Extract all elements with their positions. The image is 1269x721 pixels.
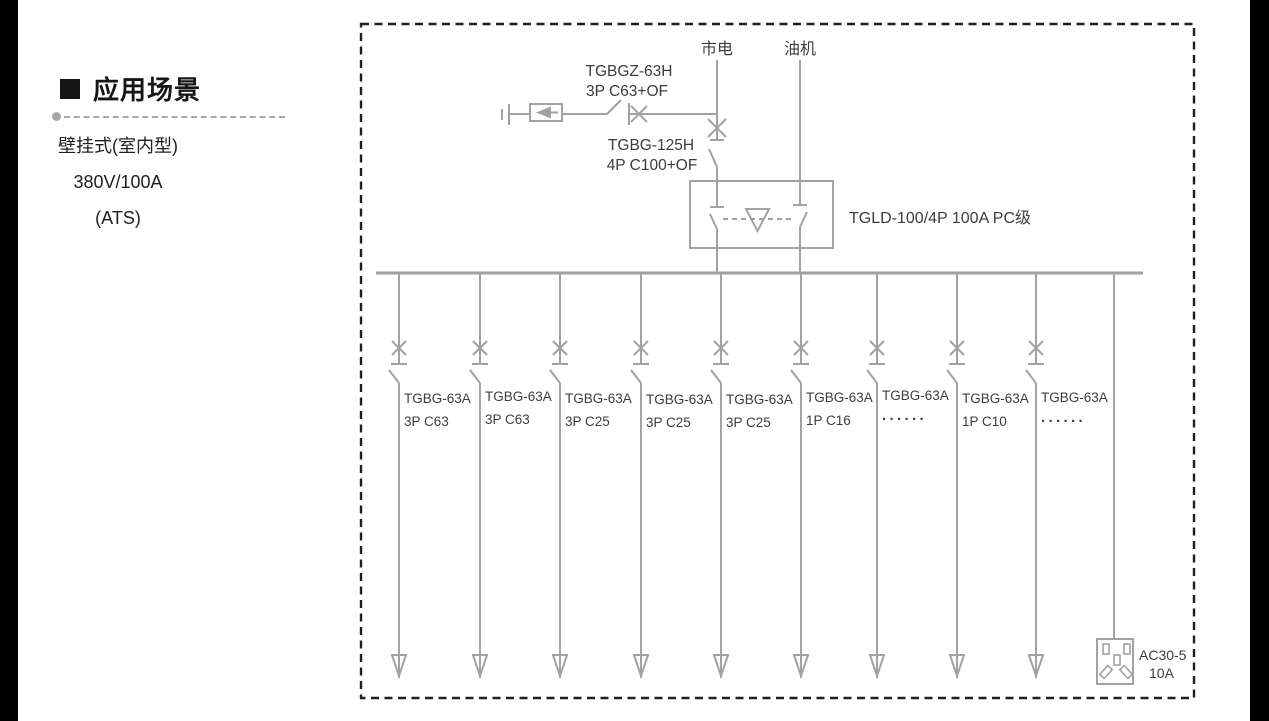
- feeder-branch-5: TGBG-63A 3P C25: [711, 273, 793, 678]
- branch-model: TGBG-63A: [646, 392, 713, 407]
- generator-source-label: 油机: [784, 40, 816, 58]
- diagram-border: [361, 24, 1194, 698]
- branch-breaker-icon: [631, 273, 649, 678]
- branch-model: TGBG-63A: [565, 391, 632, 406]
- branch-model: TGBG-63A: [882, 388, 949, 403]
- ats-switch-icon: [690, 181, 833, 273]
- branch-model: TGBG-63A: [962, 391, 1029, 406]
- branch-spec: 3P C25: [565, 414, 610, 429]
- surge-protector-icon: [502, 100, 717, 125]
- mains-breaker-icon: [708, 60, 726, 207]
- branch-spec: 3P C63: [404, 414, 449, 429]
- branch-breaker-icon: [711, 273, 729, 678]
- spd-breaker-spec: 3P C63+OF: [586, 83, 668, 100]
- main-breaker-model: TGBG-125H: [608, 137, 694, 154]
- branch-breaker-icon: [947, 273, 965, 678]
- feeder-branch-7: TGBG-63A ······: [867, 273, 949, 678]
- branch-breaker-icon: [1026, 273, 1044, 678]
- page: 应用场景 壁挂式(室内型) 380V/100A (ATS) 市电 油机: [0, 0, 1269, 721]
- branch-spec: 3P C25: [726, 415, 771, 430]
- feeder-branch-2: TGBG-63A 3P C63: [470, 273, 552, 678]
- branch-model: TGBG-63A: [485, 389, 552, 404]
- branch-breaker-icon: [389, 273, 407, 678]
- branch-model: TGBG-63A: [726, 392, 793, 407]
- wiring-diagram: 市电 油机 TGBGZ-63H 3P C: [0, 0, 1269, 721]
- socket-model-label: AC30-5: [1139, 647, 1187, 663]
- feeder-branch-6: TGBG-63A 1P C16: [791, 273, 873, 678]
- branch-spec: 1P C10: [962, 414, 1007, 429]
- spd-breaker-model: TGBGZ-63H: [586, 63, 673, 80]
- branch-model: TGBG-63A: [1041, 390, 1108, 405]
- feeder-branch-9: TGBG-63A ······: [1026, 273, 1108, 678]
- feeder-branch-8: TGBG-63A 1P C10: [947, 273, 1029, 678]
- branch-breaker-icon: [867, 273, 885, 678]
- branch-spec: 1P C16: [806, 413, 851, 428]
- branch-spec: ······: [882, 411, 927, 428]
- socket-rating-label: 10A: [1149, 665, 1175, 681]
- ats-model-label: TGLD-100/4P 100A PC级: [849, 209, 1031, 227]
- feeder-branch-1: TGBG-63A 3P C63: [389, 273, 471, 678]
- feeder-branch-4: TGBG-63A 3P C25: [631, 273, 713, 678]
- branch-model: TGBG-63A: [806, 390, 873, 405]
- feeder-branch-3: TGBG-63A 3P C25: [550, 273, 632, 678]
- branch-breaker-icon: [550, 273, 568, 678]
- main-breaker-spec: 4P C100+OF: [607, 157, 698, 174]
- branch-spec: ······: [1041, 413, 1086, 430]
- branch-spec: 3P C25: [646, 415, 691, 430]
- branch-model: TGBG-63A: [404, 391, 471, 406]
- branch-breaker-icon: [470, 273, 488, 678]
- branch-spec: 3P C63: [485, 412, 530, 427]
- mains-source-label: 市电: [701, 40, 733, 58]
- branch-breaker-icon: [791, 273, 809, 678]
- socket-icon: [1097, 639, 1133, 684]
